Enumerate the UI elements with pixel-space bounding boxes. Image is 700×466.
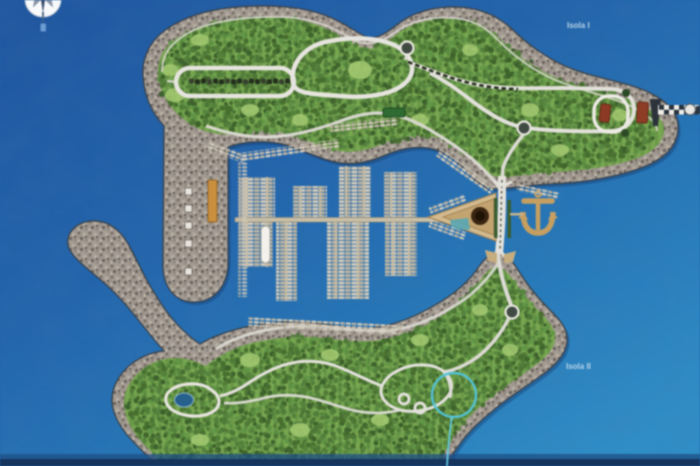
- svg-text:Isola I: Isola I: [567, 21, 590, 30]
- svg-text:Isola II: Isola II: [566, 362, 591, 371]
